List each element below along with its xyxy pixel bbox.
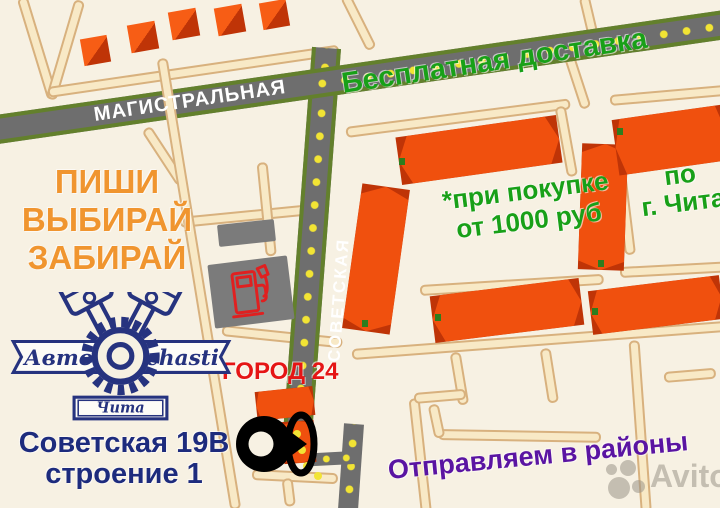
building xyxy=(80,35,111,66)
building xyxy=(168,8,200,40)
slogan-line1: ПИШИ xyxy=(12,163,202,201)
road-sovetskaya-lower xyxy=(338,423,364,508)
map-advert: МАГИСТРАЛЬНАЯ СОВЕТСКАЯ Бесплатная доста… xyxy=(0,0,720,508)
address-line1: Советская 19В xyxy=(8,428,240,459)
slogan-text: ПИШИ ВЫБИРАЙ ЗАБИРАЙ xyxy=(12,163,202,277)
avito-logo-circle xyxy=(608,477,630,499)
road-dots xyxy=(338,423,364,508)
building xyxy=(259,0,290,30)
logo-text-city: Чита xyxy=(96,400,144,417)
slogan-line2: ВЫБИРАЙ xyxy=(12,201,202,239)
logo-text-right: chasti xyxy=(146,346,219,371)
footpath xyxy=(620,261,720,278)
bush xyxy=(598,260,604,267)
avito-watermark-text: Avito xyxy=(650,458,720,495)
logo-text-left: Авто xyxy=(22,346,93,371)
footpath xyxy=(610,85,720,106)
footpath xyxy=(540,348,559,404)
avito-logo-circle xyxy=(620,460,636,476)
free-delivery-text: Бесплатная доставка xyxy=(340,23,650,101)
store-name-text: ГОРОД 24 xyxy=(222,358,338,386)
address-text: Советская 19В строение 1 xyxy=(8,428,240,490)
autochasti-logo: Авто chasti Чита xyxy=(10,292,232,424)
bush xyxy=(592,308,598,315)
footpath xyxy=(340,0,377,52)
bush xyxy=(435,314,441,321)
bush xyxy=(617,128,623,135)
fuel-pump-icon xyxy=(225,261,277,320)
slogan-line3: ЗАБИРАЙ xyxy=(12,239,202,277)
bush xyxy=(399,158,405,165)
avito-logo-circle xyxy=(606,464,617,475)
footpath xyxy=(664,368,717,383)
bush xyxy=(362,320,368,327)
location-pin-icon xyxy=(228,402,324,488)
building xyxy=(214,4,246,36)
address-line2: строение 1 xyxy=(8,459,240,490)
building xyxy=(127,21,159,53)
footpath xyxy=(428,403,446,439)
avito-logo-circle xyxy=(632,480,645,493)
